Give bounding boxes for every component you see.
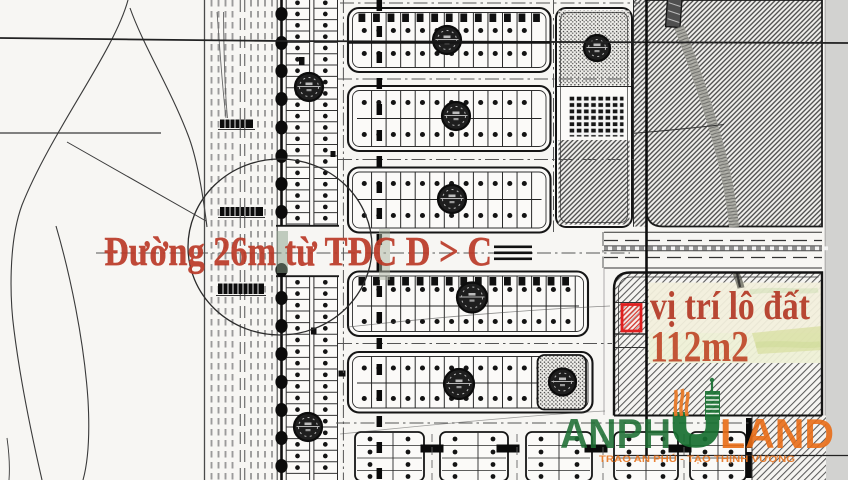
svg-text:TRAO AN PHÚ - TẠO THỊNH VƯỢNG: TRAO AN PHÚ - TẠO THỊNH VƯỢNG	[599, 453, 795, 464]
svg-text:LAND: LAND	[720, 410, 834, 457]
svg-text:ANPH: ANPH	[560, 410, 671, 457]
svg-text:112m2: 112m2	[650, 322, 749, 371]
svg-text:Đường 26m từ TĐC D > C: Đường 26m từ TĐC D > C	[104, 228, 492, 274]
